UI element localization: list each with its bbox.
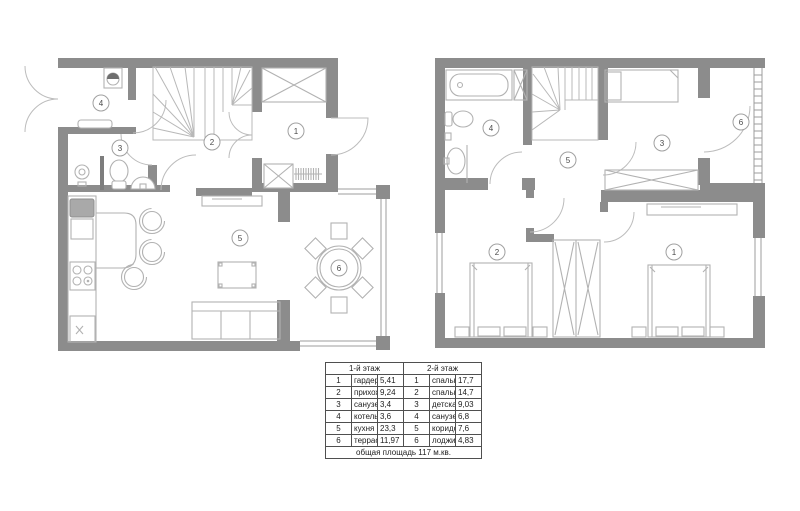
terrace-post: [376, 185, 390, 199]
floor2-title: 2-й этаж: [404, 363, 482, 375]
bathroom-door-arc: [490, 152, 522, 184]
f2-num: 1: [404, 375, 430, 387]
svg-text:3: 3: [118, 144, 123, 153]
room-label: 1: [288, 123, 304, 139]
toilet-icon: [445, 111, 473, 140]
f1-name: терраса: [352, 435, 378, 447]
window: [437, 233, 761, 296]
f1-area: 3,6: [378, 411, 404, 423]
f2-num: 6: [404, 435, 430, 447]
svg-text:1: 1: [294, 127, 299, 136]
bedroom1-door-arc: [604, 212, 634, 242]
boiler-icon: [104, 68, 122, 88]
bar-stool-icon: [122, 209, 165, 290]
room-label: 5: [232, 230, 248, 246]
f1-area: 3,4: [378, 399, 404, 411]
nightstand-icon: [533, 327, 547, 337]
kitchen-counter: [68, 196, 96, 342]
entrance-door-arc: [25, 99, 58, 132]
f1-num: 5: [326, 423, 352, 435]
sofa-icon: [192, 302, 280, 339]
room-label: 5: [560, 152, 576, 168]
nightstand-icon: [710, 327, 724, 337]
legend-table: 1-й этаж 2-й этаж 1 гардероб 5,41 1 спал…: [325, 362, 482, 459]
f2-area: 17,7: [456, 375, 482, 387]
f1-name: котельная: [352, 411, 378, 423]
room-label: 2: [489, 244, 505, 260]
wardrobe-door-arc: [229, 112, 252, 135]
bed-icon: [648, 265, 710, 337]
f2-area: 4,83: [456, 435, 482, 447]
wardrobe-door-arc: [229, 135, 252, 158]
kitchen-island: [96, 213, 136, 268]
svg-text:6: 6: [337, 264, 342, 273]
room-label: 3: [112, 140, 128, 156]
f2-area: 9,03: [456, 399, 482, 411]
svg-text:5: 5: [566, 156, 571, 165]
room-label: 6: [331, 260, 347, 276]
f2-area: 14,7: [456, 387, 482, 399]
legend-row: 3 санузел 3,4 3 детская 9,03: [326, 399, 482, 411]
svg-text:5: 5: [238, 234, 243, 243]
f1-num: 4: [326, 411, 352, 423]
closet-icon: [553, 240, 600, 337]
f2-name: санузел: [430, 411, 456, 423]
wardrobe-icon: [605, 170, 698, 190]
nightstand-icon: [455, 327, 469, 337]
legend-row: 5 кухня 23,3 5 коридор 7,6: [326, 423, 482, 435]
f1-area: 23,3: [378, 423, 404, 435]
f2-name: коридор: [430, 423, 456, 435]
f1-area: 5,41: [378, 375, 404, 387]
terrace-post: [376, 336, 390, 350]
bedroom2-door-arc: [530, 198, 564, 232]
kitchen-door-arc: [161, 155, 196, 190]
nightstand-icon: [632, 327, 646, 337]
stove-icon: [70, 262, 95, 290]
room-label: 4: [93, 95, 109, 111]
dresser-icon: [647, 204, 737, 215]
floor2-plan: 1 2 3 4 5 6: [435, 58, 765, 348]
kitchen-sink-icon: [70, 316, 95, 342]
coffee-table-icon: [218, 262, 256, 288]
legend-row: 1 гардероб 5,41 1 спальня 17,7: [326, 375, 482, 387]
svg-text:3: 3: [660, 139, 665, 148]
legend-row: 2 прихожая 9,24 2 спальня 14,7: [326, 387, 482, 399]
f1-num: 2: [326, 387, 352, 399]
loggia-railing: [754, 68, 762, 183]
bench-icon: [78, 120, 112, 128]
f2-name: спальня: [430, 387, 456, 399]
f1-name: кухня: [352, 423, 378, 435]
washing-machine-icon: [75, 165, 89, 186]
svg-text:2: 2: [210, 138, 215, 147]
f1-name: гардероб: [352, 375, 378, 387]
room-label: 6: [733, 114, 749, 130]
svg-text:2: 2: [495, 248, 500, 257]
floorplan-page: 1 2 3 4 5 6: [0, 0, 800, 511]
svg-text:4: 4: [99, 99, 104, 108]
f1-num: 6: [326, 435, 352, 447]
svg-text:4: 4: [489, 124, 494, 133]
f1-name: прихожая: [352, 387, 378, 399]
f1-num: 3: [326, 399, 352, 411]
bed-icon: [470, 263, 532, 337]
hanger-rod-icon: [294, 168, 322, 180]
f1-area: 11,97: [378, 435, 404, 447]
sink-icon: [444, 145, 467, 183]
f2-name: детская: [430, 399, 456, 411]
bathtub-icon: [446, 70, 512, 100]
legend-row: 4 котельная 3,6 4 санузел 6,8: [326, 411, 482, 423]
f2-name: спальня: [430, 375, 456, 387]
f2-num: 3: [404, 399, 430, 411]
f2-num: 2: [404, 387, 430, 399]
entrance-door-arc: [25, 66, 58, 99]
floor1-title: 1-й этаж: [326, 363, 404, 375]
room-label: 2: [204, 134, 220, 150]
total-area: общая площадь 117 м.кв.: [326, 447, 482, 459]
floor1-plan: 1 2 3 4 5 6: [25, 58, 390, 351]
fridge-icon: [70, 199, 94, 217]
console-shelf-icon: [202, 196, 262, 206]
room-label: 1: [666, 244, 682, 260]
f2-num: 5: [404, 423, 430, 435]
legend-footer-row: общая площадь 117 м.кв.: [326, 447, 482, 459]
f1-name: санузел: [352, 399, 378, 411]
f2-area: 7,6: [456, 423, 482, 435]
stairs-icon: [532, 67, 598, 140]
svg-text:1: 1: [672, 248, 677, 257]
legend-header-row: 1-й этаж 2-й этаж: [326, 363, 482, 375]
f1-num: 1: [326, 375, 352, 387]
main-entrance-door-arc: [331, 118, 368, 155]
f1-area: 9,24: [378, 387, 404, 399]
room-label: 3: [654, 135, 670, 151]
bed-icon: [605, 70, 678, 102]
svg-text:6: 6: [739, 118, 744, 127]
toilet-icon: [110, 160, 128, 189]
partition-wall: [100, 156, 104, 190]
f2-area: 6,8: [456, 411, 482, 423]
room-label: 4: [483, 120, 499, 136]
f2-num: 4: [404, 411, 430, 423]
f2-name: лоджия: [430, 435, 456, 447]
legend-row: 6 терраса 11,97 6 лоджия 4,83: [326, 435, 482, 447]
